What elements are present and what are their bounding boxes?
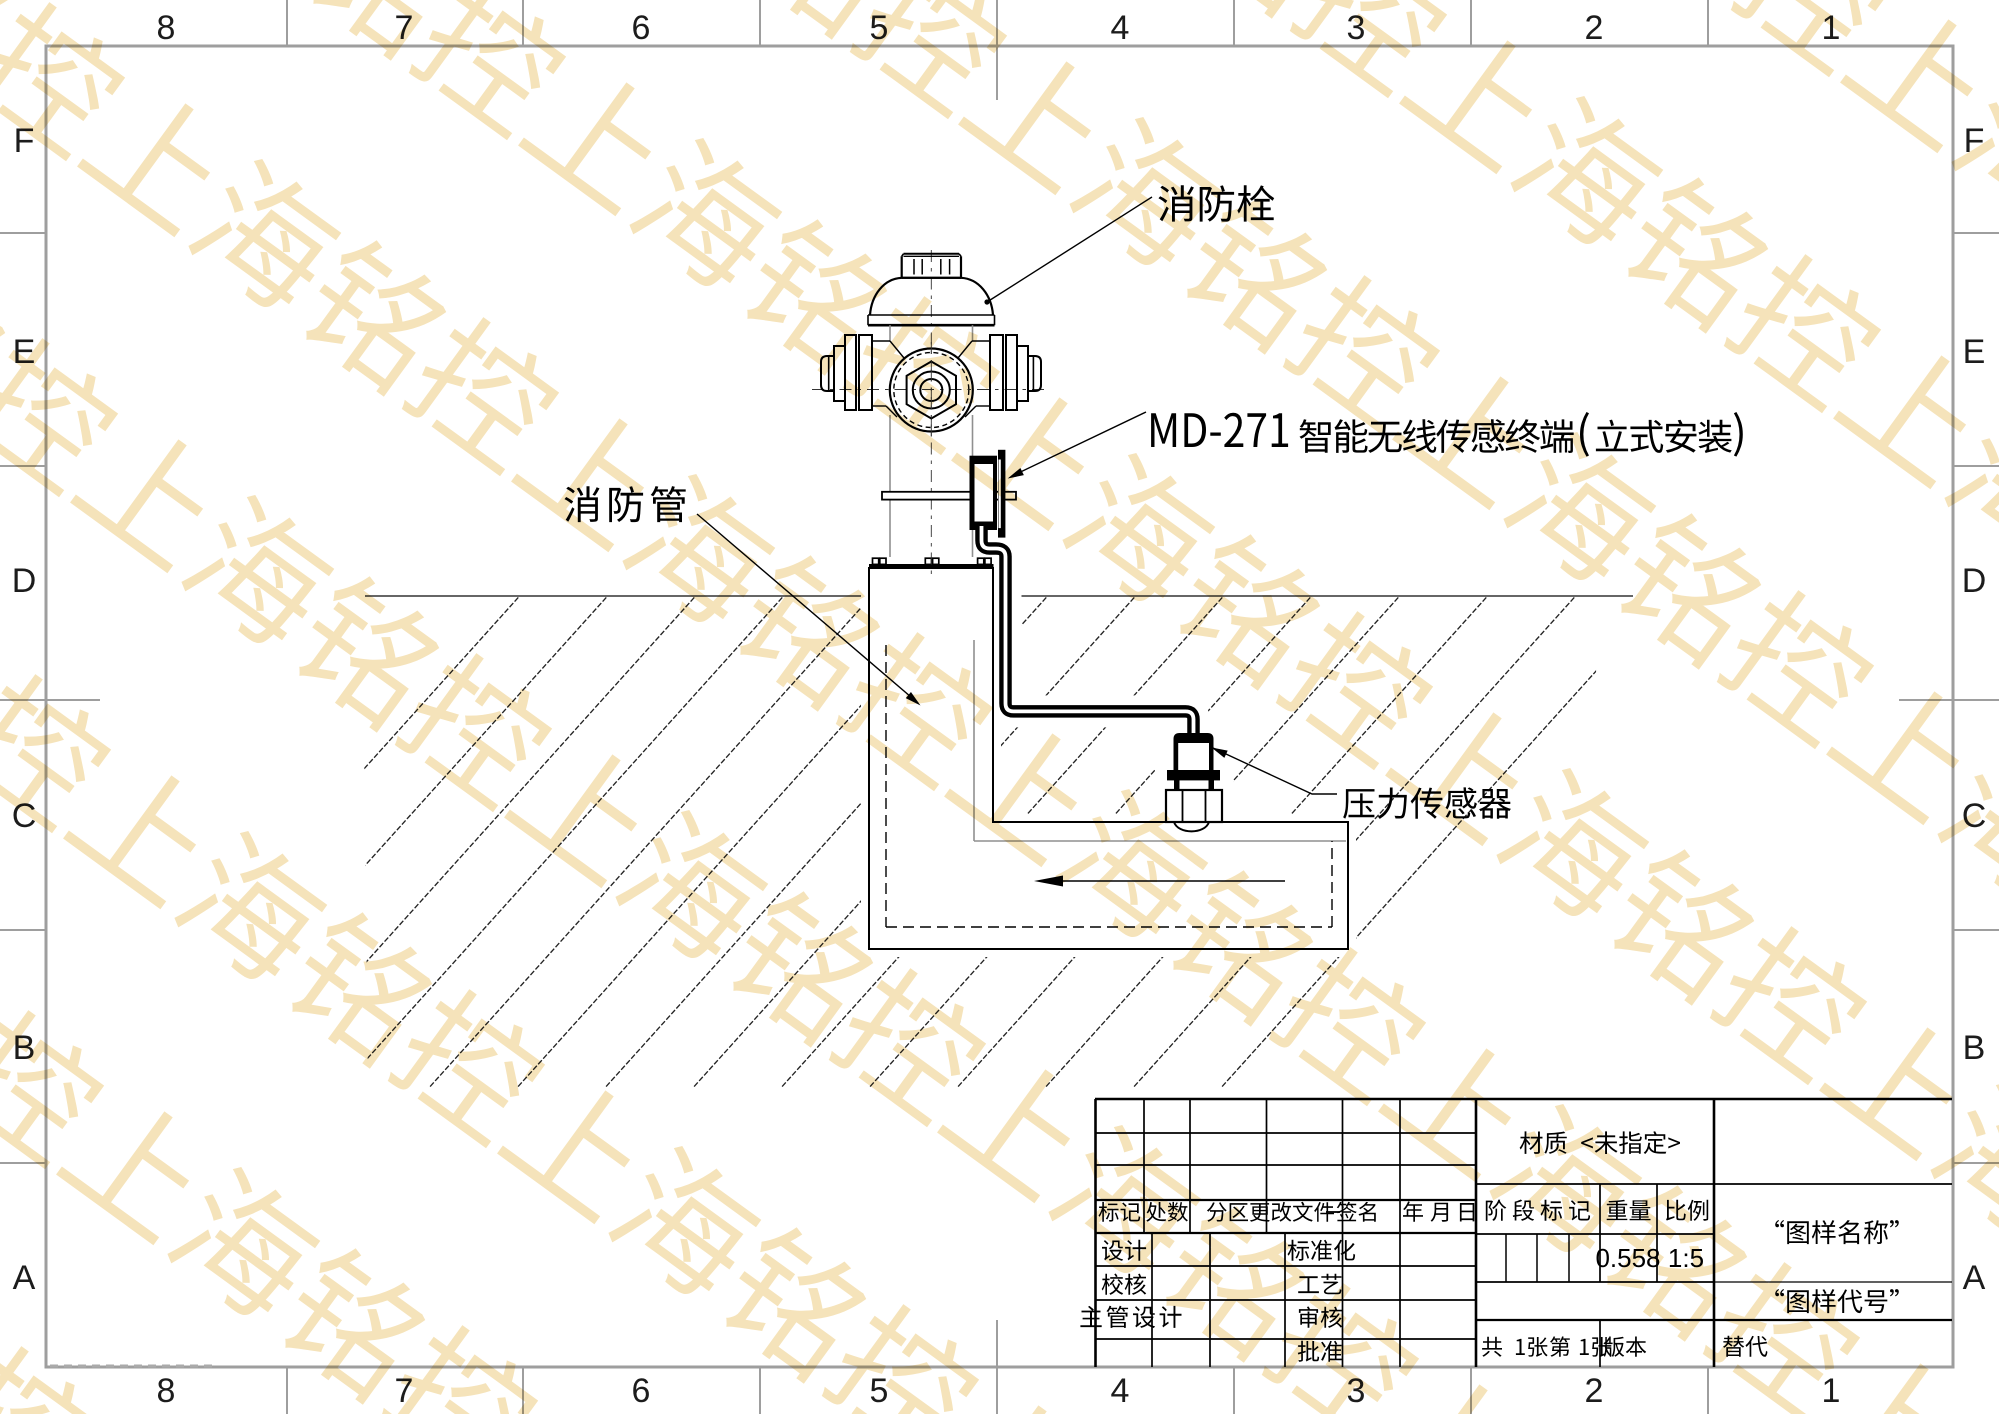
svg-text:4: 4	[1111, 9, 1130, 47]
svg-text:4: 4	[1111, 1372, 1130, 1410]
svg-text:2: 2	[1585, 9, 1604, 47]
svg-text:2: 2	[1585, 1372, 1604, 1410]
svg-text:6: 6	[632, 1372, 651, 1410]
svg-text:8: 8	[157, 9, 176, 47]
svg-text:A: A	[1963, 1259, 1986, 1297]
svg-text:1: 1	[1822, 1372, 1841, 1410]
svg-text:A: A	[13, 1259, 36, 1297]
svg-text:5: 5	[870, 1372, 889, 1410]
svg-text:E: E	[1963, 333, 1986, 371]
svg-text:6: 6	[632, 9, 651, 47]
svg-text:B: B	[1963, 1029, 1986, 1067]
svg-text:3: 3	[1347, 9, 1366, 47]
svg-text:D: D	[12, 562, 37, 600]
svg-text:8: 8	[157, 1372, 176, 1410]
svg-text:D: D	[1962, 562, 1987, 600]
